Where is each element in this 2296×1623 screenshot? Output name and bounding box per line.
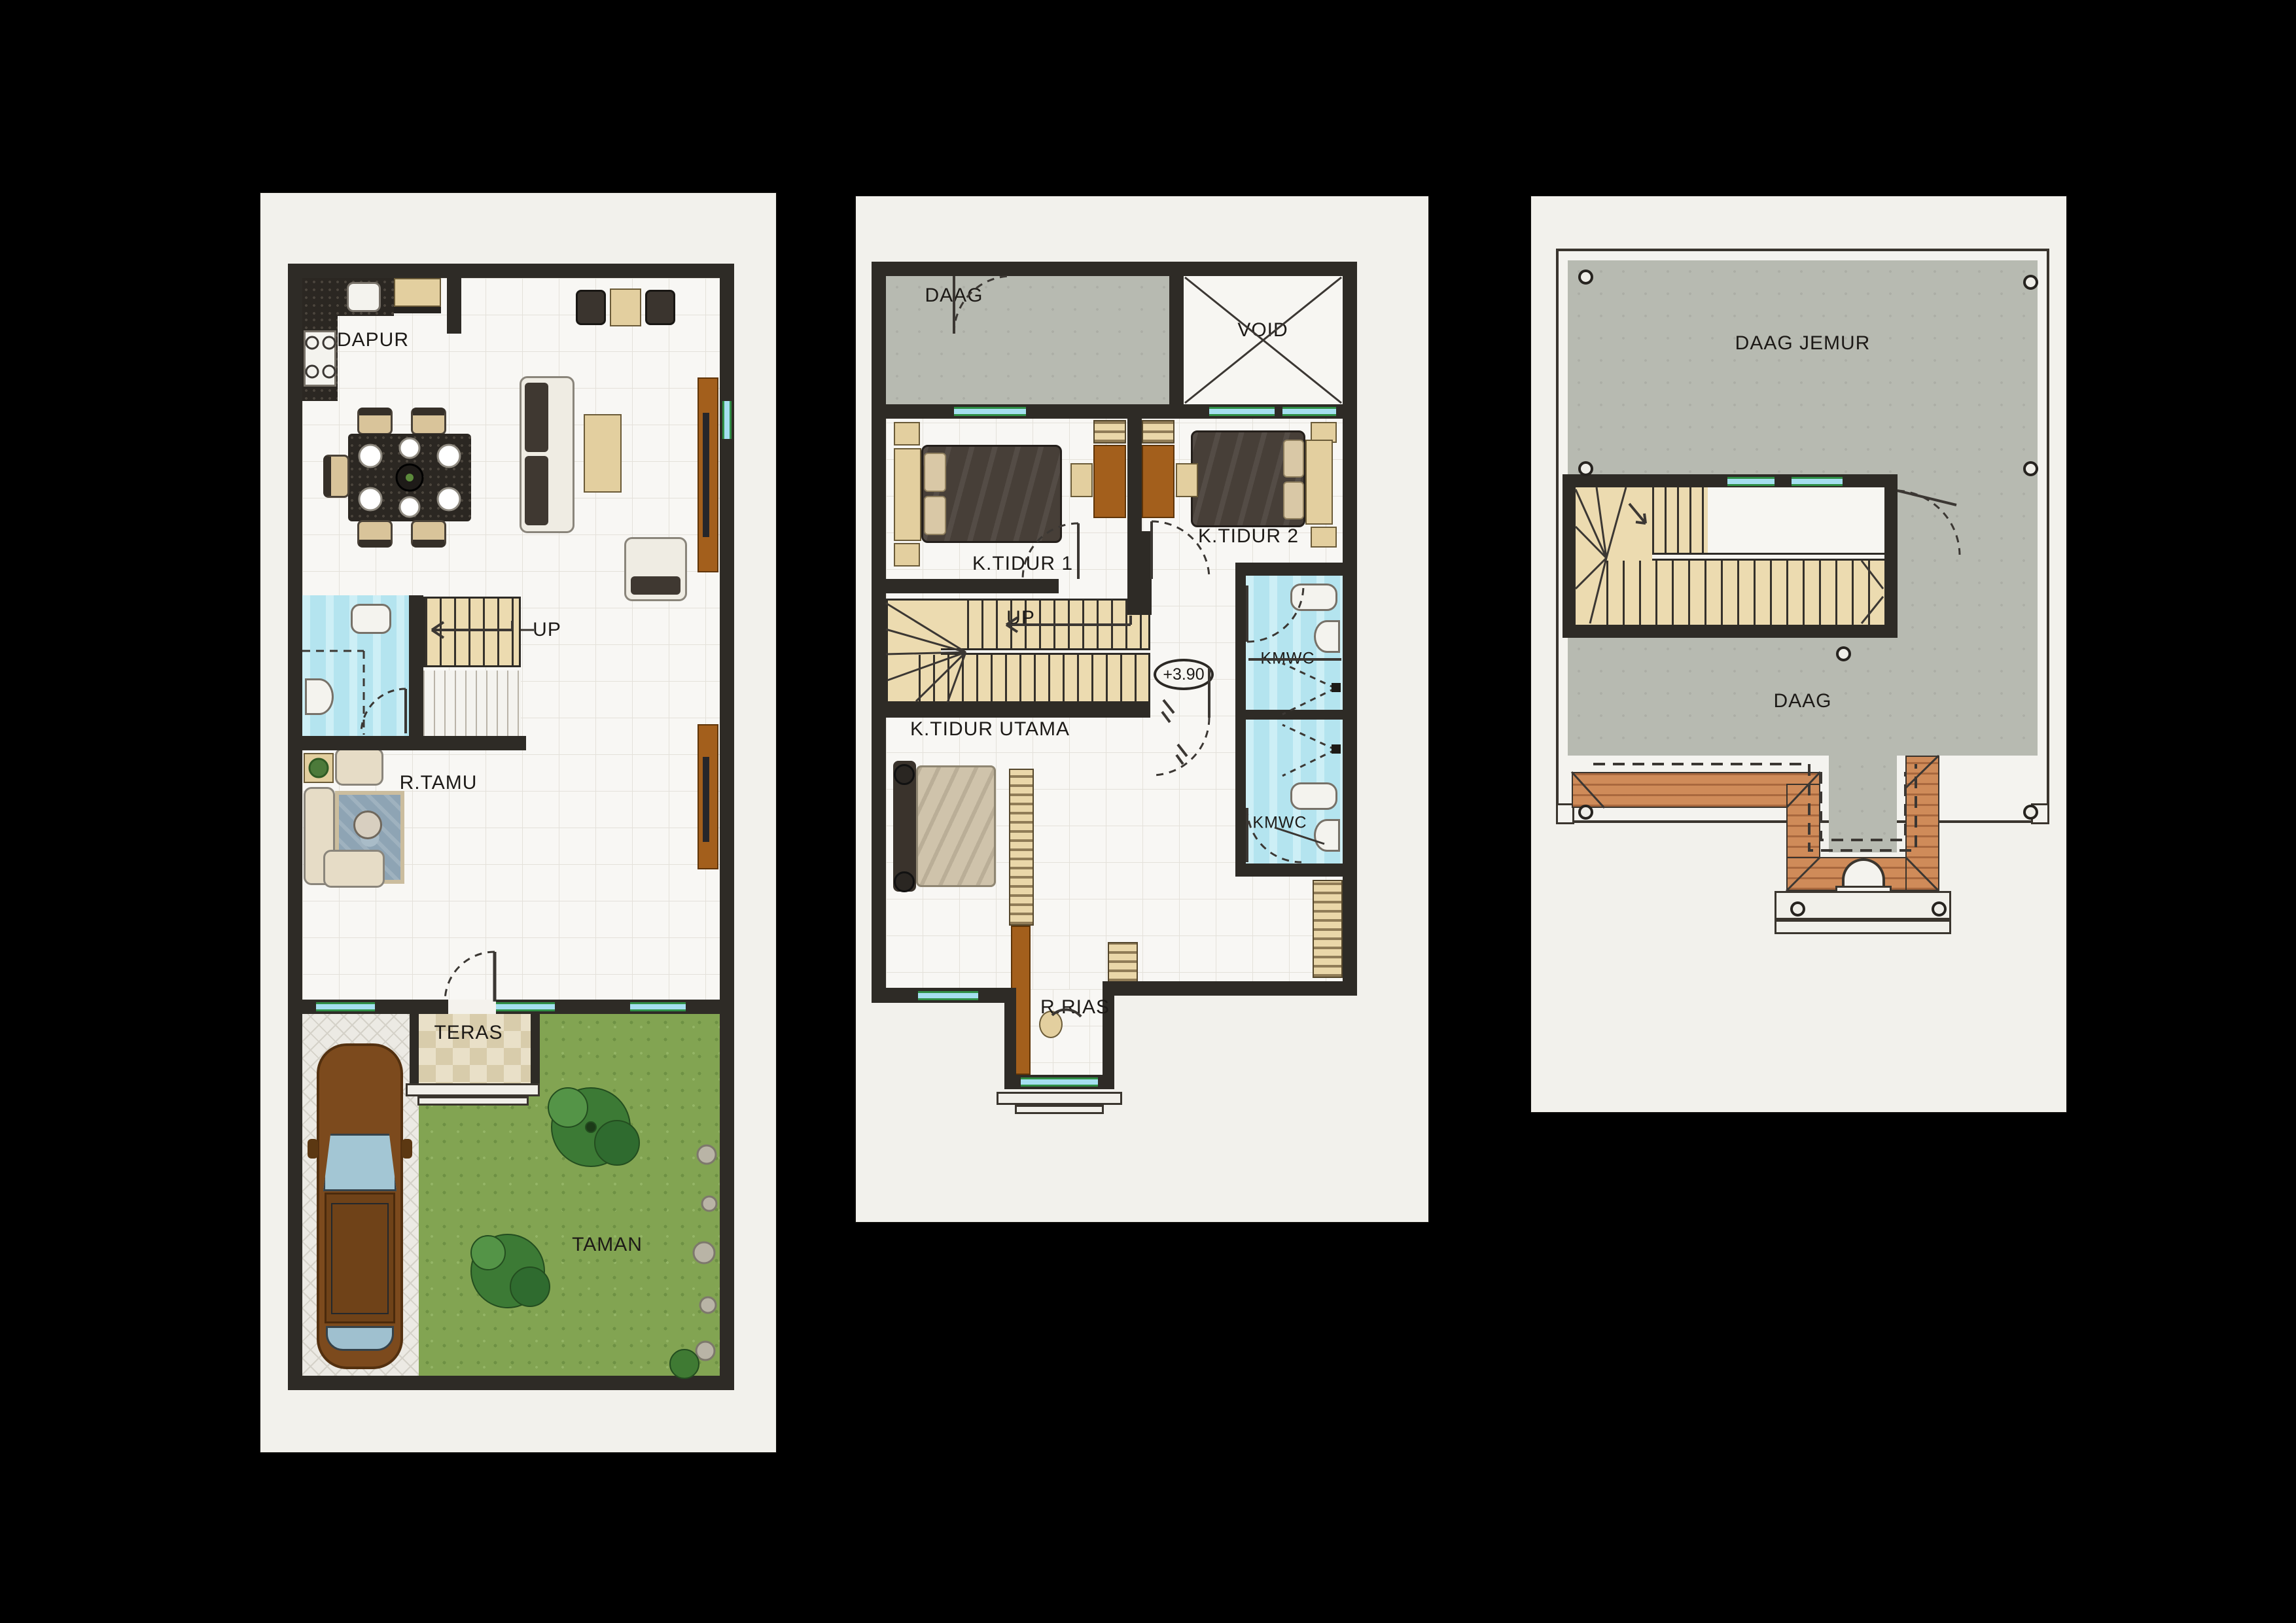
nightstand <box>1311 527 1337 548</box>
dining-chair <box>411 520 446 548</box>
tv-screen-lower <box>703 757 709 842</box>
desk-ktidur1 <box>1093 445 1126 518</box>
wall-under-stairs <box>872 703 1150 718</box>
stair-flight-upper <box>1652 487 1708 553</box>
stair-rail <box>941 648 1150 655</box>
screw-marker <box>1578 461 1593 476</box>
wall-bath-bottom <box>1235 864 1357 877</box>
car-rear-window <box>326 1326 394 1351</box>
wall-garden-left <box>288 1014 302 1390</box>
teras-wall-left <box>410 1014 419 1083</box>
screw-marker <box>2023 805 2038 820</box>
dining-table <box>348 434 471 521</box>
stairs-upper-flight2 <box>919 655 1148 701</box>
bed2-headboard <box>1305 440 1333 525</box>
wall-door-stub <box>1127 531 1152 615</box>
armchair-ottoman-cushion <box>631 576 680 595</box>
wall <box>720 264 734 1014</box>
nightstand <box>894 422 920 445</box>
toilet-ground <box>351 604 391 634</box>
wardrobe-master <box>1009 769 1034 926</box>
window <box>496 1002 555 1011</box>
window-bay <box>1021 1077 1098 1087</box>
bay-step-outer <box>1775 920 1951 934</box>
room-label-rrias: R.RIAS <box>1040 996 1110 1019</box>
sink-bath1 <box>1314 620 1340 653</box>
side-table-top <box>610 288 641 326</box>
room-label-daag-upper: DAAG <box>925 285 983 307</box>
wall-kitchen-stub <box>447 264 461 334</box>
wall <box>288 264 734 278</box>
coffee-table <box>584 414 622 493</box>
car-sunroof <box>331 1203 389 1314</box>
screw-marker <box>1836 646 1851 661</box>
screw-marker <box>1790 901 1805 916</box>
sheet-background: DAPUR UP R.TAMU TERAS TAMAN <box>0 0 2296 1623</box>
wall <box>872 579 1059 593</box>
tv-screen-upper <box>703 413 709 537</box>
pillow <box>1283 440 1304 478</box>
panel-upper-floor: +3.90 DAAG VOID K.TIDUR 1 K.TIDUR 2 UP K… <box>856 196 1428 1222</box>
desk-chair <box>1176 463 1198 497</box>
car-windshield <box>323 1134 397 1191</box>
wall-bath-top <box>1235 563 1357 576</box>
stairs-ground <box>423 597 521 667</box>
room-label-ktidur1: K.TIDUR 1 <box>972 553 1073 575</box>
room-label-up-upper: UP <box>1006 607 1035 629</box>
wall <box>872 262 1357 276</box>
car-mirror-left <box>308 1139 318 1159</box>
desk-ktidur2 <box>1142 445 1174 518</box>
stove <box>304 330 336 387</box>
bay-step-2 <box>1015 1105 1104 1114</box>
nightstand <box>894 543 920 567</box>
room-label-taman: TAMAN <box>572 1234 643 1256</box>
room-label-daag-roof: DAAG <box>1773 690 1831 712</box>
window <box>316 1002 375 1011</box>
screw-marker <box>1578 805 1593 820</box>
screw-marker <box>1578 270 1593 285</box>
stairs-upper-flight1 <box>967 601 1148 650</box>
room-label-ktidur2: K.TIDUR 2 <box>1198 525 1299 548</box>
room-label-dapur: DAPUR <box>337 329 409 351</box>
understair-area <box>423 671 521 739</box>
panel-ground-floor: DAPUR UP R.TAMU TERAS TAMAN <box>260 193 776 1452</box>
dining-chair <box>323 455 349 498</box>
wall <box>1343 262 1357 996</box>
window <box>918 991 978 1000</box>
room-label-ktidur-utama: K.TIDUR UTAMA <box>910 718 1070 741</box>
window <box>1282 407 1336 416</box>
toilet-bath1 <box>1290 584 1337 611</box>
teras-step-2 <box>417 1096 529 1106</box>
bed1-headboard <box>894 448 921 541</box>
wall-bay-left <box>1004 1003 1016 1075</box>
armchair-small-left <box>576 290 606 325</box>
bay-step-1 <box>997 1092 1122 1105</box>
window-stairwell <box>1727 477 1775 486</box>
sink-bath2 <box>1314 819 1340 852</box>
panel-roof-plan: DAAG JEMUR DAAG <box>1531 196 2066 1112</box>
bay-concrete-tongue <box>1829 756 1897 852</box>
screw-marker <box>1932 901 1947 916</box>
roof-tile-bay-right <box>1905 756 1939 891</box>
armchair-small-right <box>645 290 675 325</box>
kitchen-cabinet-edge <box>394 307 441 313</box>
speaker <box>894 871 915 892</box>
car-mirror-right <box>402 1139 412 1159</box>
teras-step-1 <box>406 1083 540 1096</box>
dining-chair <box>357 520 393 548</box>
window <box>954 407 1026 416</box>
room-label-void: VOID <box>1237 319 1288 341</box>
kitchen-cabinet <box>394 278 441 307</box>
pillow <box>1283 481 1304 519</box>
pillow <box>924 496 946 535</box>
pillow <box>924 453 946 492</box>
kitchen-sink <box>347 282 381 312</box>
desk-chair <box>1070 463 1093 497</box>
roof-tile-band-left <box>1572 772 1820 808</box>
bed-master <box>916 765 996 887</box>
plant-table <box>304 753 334 783</box>
room-label-daag-jemur: DAAG JEMUR <box>1735 332 1871 355</box>
rias-shelf <box>1108 942 1138 983</box>
rias-shelf-right <box>1313 880 1343 978</box>
wall <box>288 264 302 1014</box>
room-label-rtamu: R.TAMU <box>400 772 478 794</box>
elevation-value: +3.90 <box>1163 665 1204 684</box>
wall-garden-right <box>720 1014 734 1390</box>
speaker <box>894 764 915 785</box>
room-label-up-ground: UP <box>533 619 561 641</box>
stair-landing <box>1708 487 1884 553</box>
room-label-kmwc-upper: KMWC <box>1260 650 1315 669</box>
dining-chair <box>357 408 393 435</box>
wall-bath-left <box>1235 563 1246 877</box>
stair-rail <box>1652 553 1884 561</box>
room-label-teras: TERAS <box>434 1022 503 1044</box>
screw-marker <box>2023 275 2038 290</box>
armchair-top <box>335 748 383 786</box>
wall-bedroom-divider <box>1127 419 1142 531</box>
wall-garden-bottom <box>288 1376 734 1390</box>
stair-flight-lower <box>1606 561 1884 625</box>
wall-rias-bottom <box>1103 981 1357 996</box>
screw-marker <box>2023 461 2038 476</box>
wall-mid <box>288 736 526 750</box>
window <box>1209 407 1275 416</box>
front-door-opening <box>448 1000 496 1014</box>
wall-daag-void-divider <box>1169 262 1184 419</box>
sofa-cushion-bottom <box>525 456 548 525</box>
teras-wall-right <box>531 1014 540 1083</box>
wall-bath <box>409 595 423 736</box>
wall <box>872 262 886 1003</box>
round-table <box>353 811 382 839</box>
elevation-marker: +3.90 <box>1154 659 1214 690</box>
window <box>630 1002 686 1011</box>
desk-shelf <box>1093 420 1126 444</box>
window-right-wall <box>722 401 732 439</box>
sofa-cushion-top <box>525 383 548 452</box>
toilet-bath2 <box>1290 782 1337 810</box>
window-stairwell <box>1792 477 1843 486</box>
dining-chair <box>411 408 446 435</box>
room-label-kmwc-lower: KMWC <box>1252 814 1307 833</box>
armchair-bottom <box>323 850 385 888</box>
desk-shelf <box>1142 420 1174 444</box>
sink-ground <box>305 678 334 715</box>
wall-bath-divider <box>1246 710 1343 720</box>
